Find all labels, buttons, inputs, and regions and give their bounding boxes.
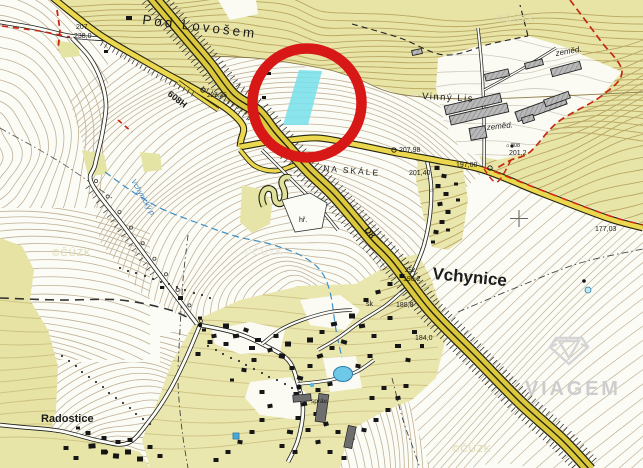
svg-text:VIAGEM: VIAGEM [525,378,621,400]
svg-text:⌂ 208: ⌂ 208 [506,143,520,149]
svg-text:šk: šk [366,301,374,308]
svg-text:184,0: 184,0 [415,335,433,342]
svg-text:225,35: 225,35 [207,92,227,99]
svg-text:201,40: 201,40 [409,170,431,177]
svg-text:177,03: 177,03 [595,226,617,233]
svg-text:⌂: ⌂ [430,188,434,194]
svg-text:207: 207 [76,24,88,31]
svg-text:©ČÚZK: ©ČÚZK [244,245,284,258]
svg-text:190,2: 190,2 [403,276,421,283]
svg-text:197,00: 197,00 [456,162,478,169]
svg-text:Radostice: Radostice [41,413,94,425]
svg-text:252: 252 [405,268,416,274]
svg-text:©ČÚZK: ©ČÚZK [452,442,492,455]
svg-text:201,2: 201,2 [509,150,527,157]
svg-text:207,98: 207,98 [399,147,421,154]
svg-text:správ.: správ. [311,398,328,405]
svg-text:238,0: 238,0 [74,33,92,40]
svg-text:©ČÚZK: ©ČÚZK [52,246,92,259]
svg-text:hř.: hř. [299,217,307,224]
svg-text:188,8: 188,8 [396,302,414,309]
svg-text:©ČÚZK: ©ČÚZK [496,12,536,25]
